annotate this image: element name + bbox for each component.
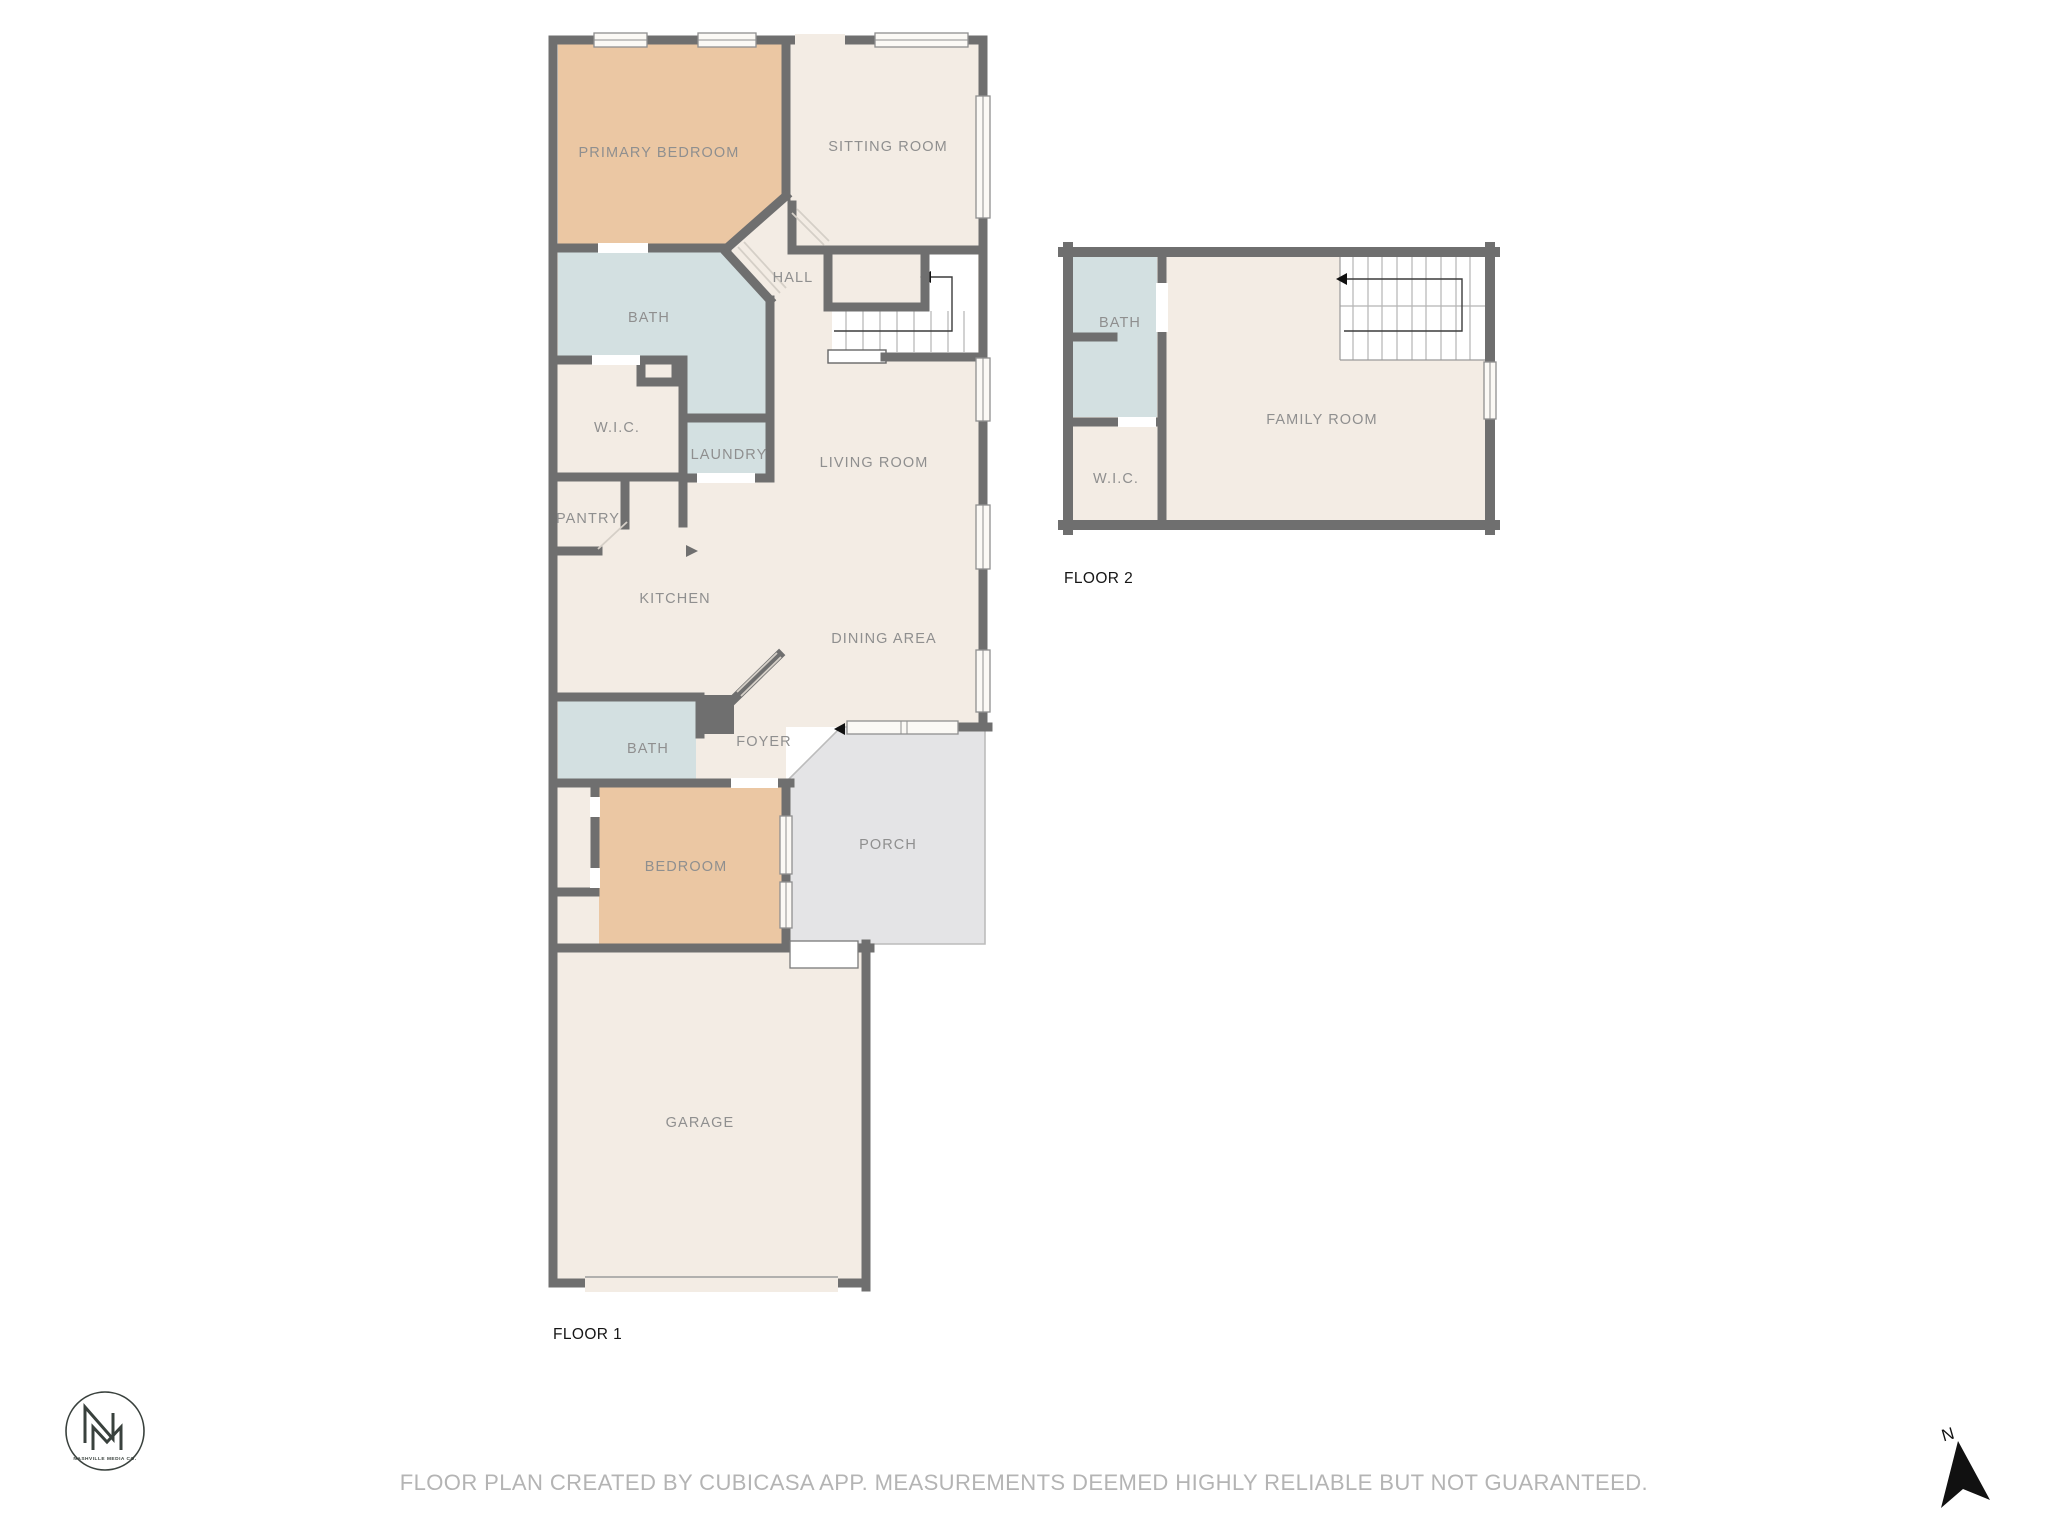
- floor2-plan: BATH W.I.C. FAMILY ROOM FLOOR 2: [1063, 247, 1496, 587]
- label-family-room: FAMILY ROOM: [1266, 412, 1377, 428]
- label-laundry: LAUNDRY: [691, 447, 768, 463]
- label-hall: HALL: [773, 270, 814, 286]
- label-foyer: FOYER: [736, 734, 791, 750]
- bath-notch: [645, 362, 672, 380]
- label-bath-floor2: BATH: [1099, 315, 1141, 331]
- label-kitchen: KITCHEN: [639, 591, 710, 607]
- label-bedroom: BEDROOM: [645, 859, 728, 875]
- room-bath-2: [558, 701, 696, 779]
- logo-company-name: NASHVILLE MEDIA CO.: [73, 1456, 136, 1462]
- stair-landing: [828, 350, 886, 363]
- label-porch: PORCH: [859, 837, 917, 853]
- floor2-title: FLOOR 2: [1064, 570, 1133, 587]
- north-label: N: [1939, 1424, 1956, 1446]
- label-wic-floor2: W.I.C.: [1093, 471, 1139, 487]
- floor-plan-page: PRIMARY BEDROOM SITTING ROOM HALL BATH W…: [0, 0, 2048, 1536]
- room-garage-floor: [557, 948, 866, 1279]
- label-living-room: LIVING ROOM: [820, 455, 929, 471]
- company-logo: NASHVILLE MEDIA CO.: [66, 1392, 144, 1470]
- label-primary-bedroom: PRIMARY BEDROOM: [579, 145, 740, 161]
- floor2-windows: [1484, 362, 1496, 419]
- label-pantry: PANTRY: [556, 511, 620, 527]
- label-bath-1: BATH: [628, 310, 670, 326]
- label-sitting-room: SITTING ROOM: [828, 139, 948, 155]
- label-dining-area: DINING AREA: [831, 631, 937, 647]
- label-bath-2: BATH: [627, 741, 669, 757]
- room-porch: [789, 727, 985, 944]
- footer-disclaimer: FLOOR PLAN CREATED BY CUBICASA APP. MEAS…: [0, 1470, 2048, 1496]
- floor1-title: FLOOR 1: [553, 1326, 622, 1343]
- label-wic-1: W.I.C.: [594, 420, 640, 436]
- disclaimer-text: FLOOR PLAN CREATED BY CUBICASA APP. MEAS…: [400, 1470, 1648, 1496]
- floor1-plan: PRIMARY BEDROOM SITTING ROOM HALL BATH W…: [553, 33, 990, 1343]
- foyer-wall-block: [698, 695, 734, 734]
- label-garage: GARAGE: [666, 1115, 735, 1131]
- floor2-stairs: [1336, 257, 1485, 360]
- floor-plan-drawing: PRIMARY BEDROOM SITTING ROOM HALL BATH W…: [0, 0, 2048, 1536]
- logo-monogram-n-icon: [85, 1407, 113, 1443]
